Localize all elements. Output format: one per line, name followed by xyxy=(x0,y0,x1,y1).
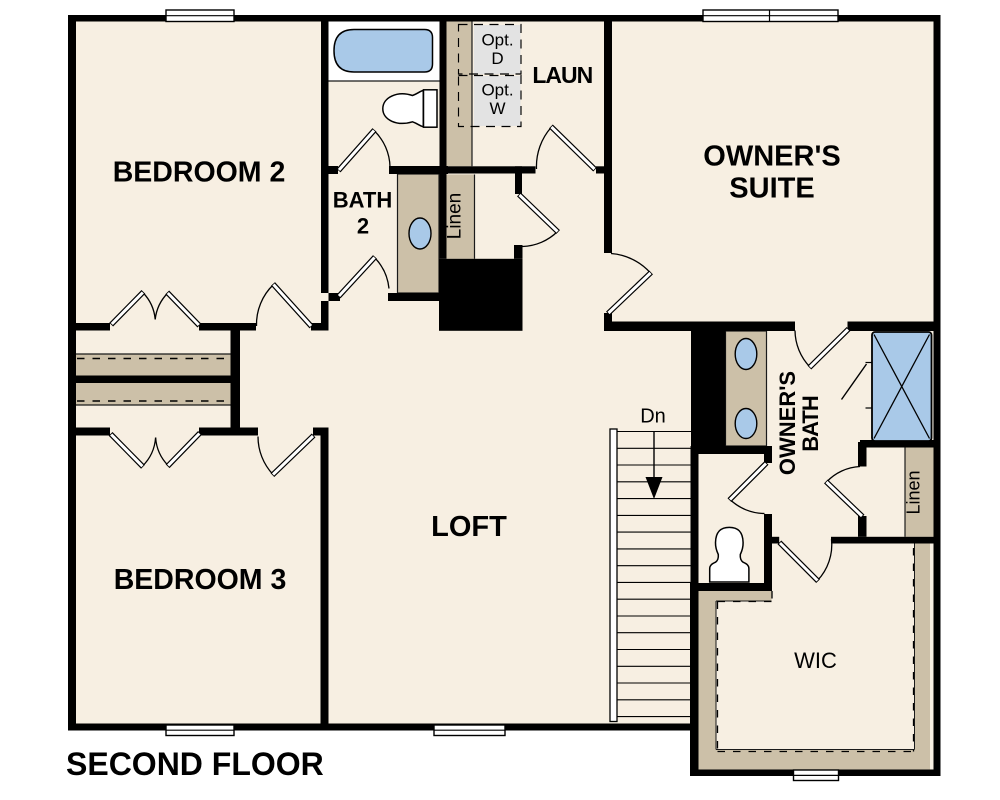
svg-text:OWNER'S: OWNER'S xyxy=(775,371,800,475)
svg-text:W: W xyxy=(489,99,505,118)
svg-text:BATH: BATH xyxy=(333,188,392,213)
svg-text:LOFT: LOFT xyxy=(431,511,507,543)
svg-text:SECOND FLOOR: SECOND FLOOR xyxy=(66,746,324,782)
svg-text:Opt.: Opt. xyxy=(481,81,513,100)
svg-text:D: D xyxy=(491,49,503,68)
svg-text:BEDROOM 3: BEDROOM 3 xyxy=(114,564,287,596)
svg-text:SUITE: SUITE xyxy=(729,173,814,205)
svg-text:BEDROOM 2: BEDROOM 2 xyxy=(113,157,286,189)
svg-text:WIC: WIC xyxy=(794,648,837,673)
svg-text:Linen: Linen xyxy=(904,470,924,514)
svg-text:2: 2 xyxy=(357,214,369,239)
svg-text:BATH: BATH xyxy=(798,396,823,452)
svg-text:Opt.: Opt. xyxy=(481,31,513,50)
svg-text:LAUN: LAUN xyxy=(532,62,592,88)
svg-text:Linen: Linen xyxy=(445,193,466,240)
svg-text:Dn: Dn xyxy=(640,406,666,428)
svg-text:OWNER'S: OWNER'S xyxy=(703,141,840,173)
